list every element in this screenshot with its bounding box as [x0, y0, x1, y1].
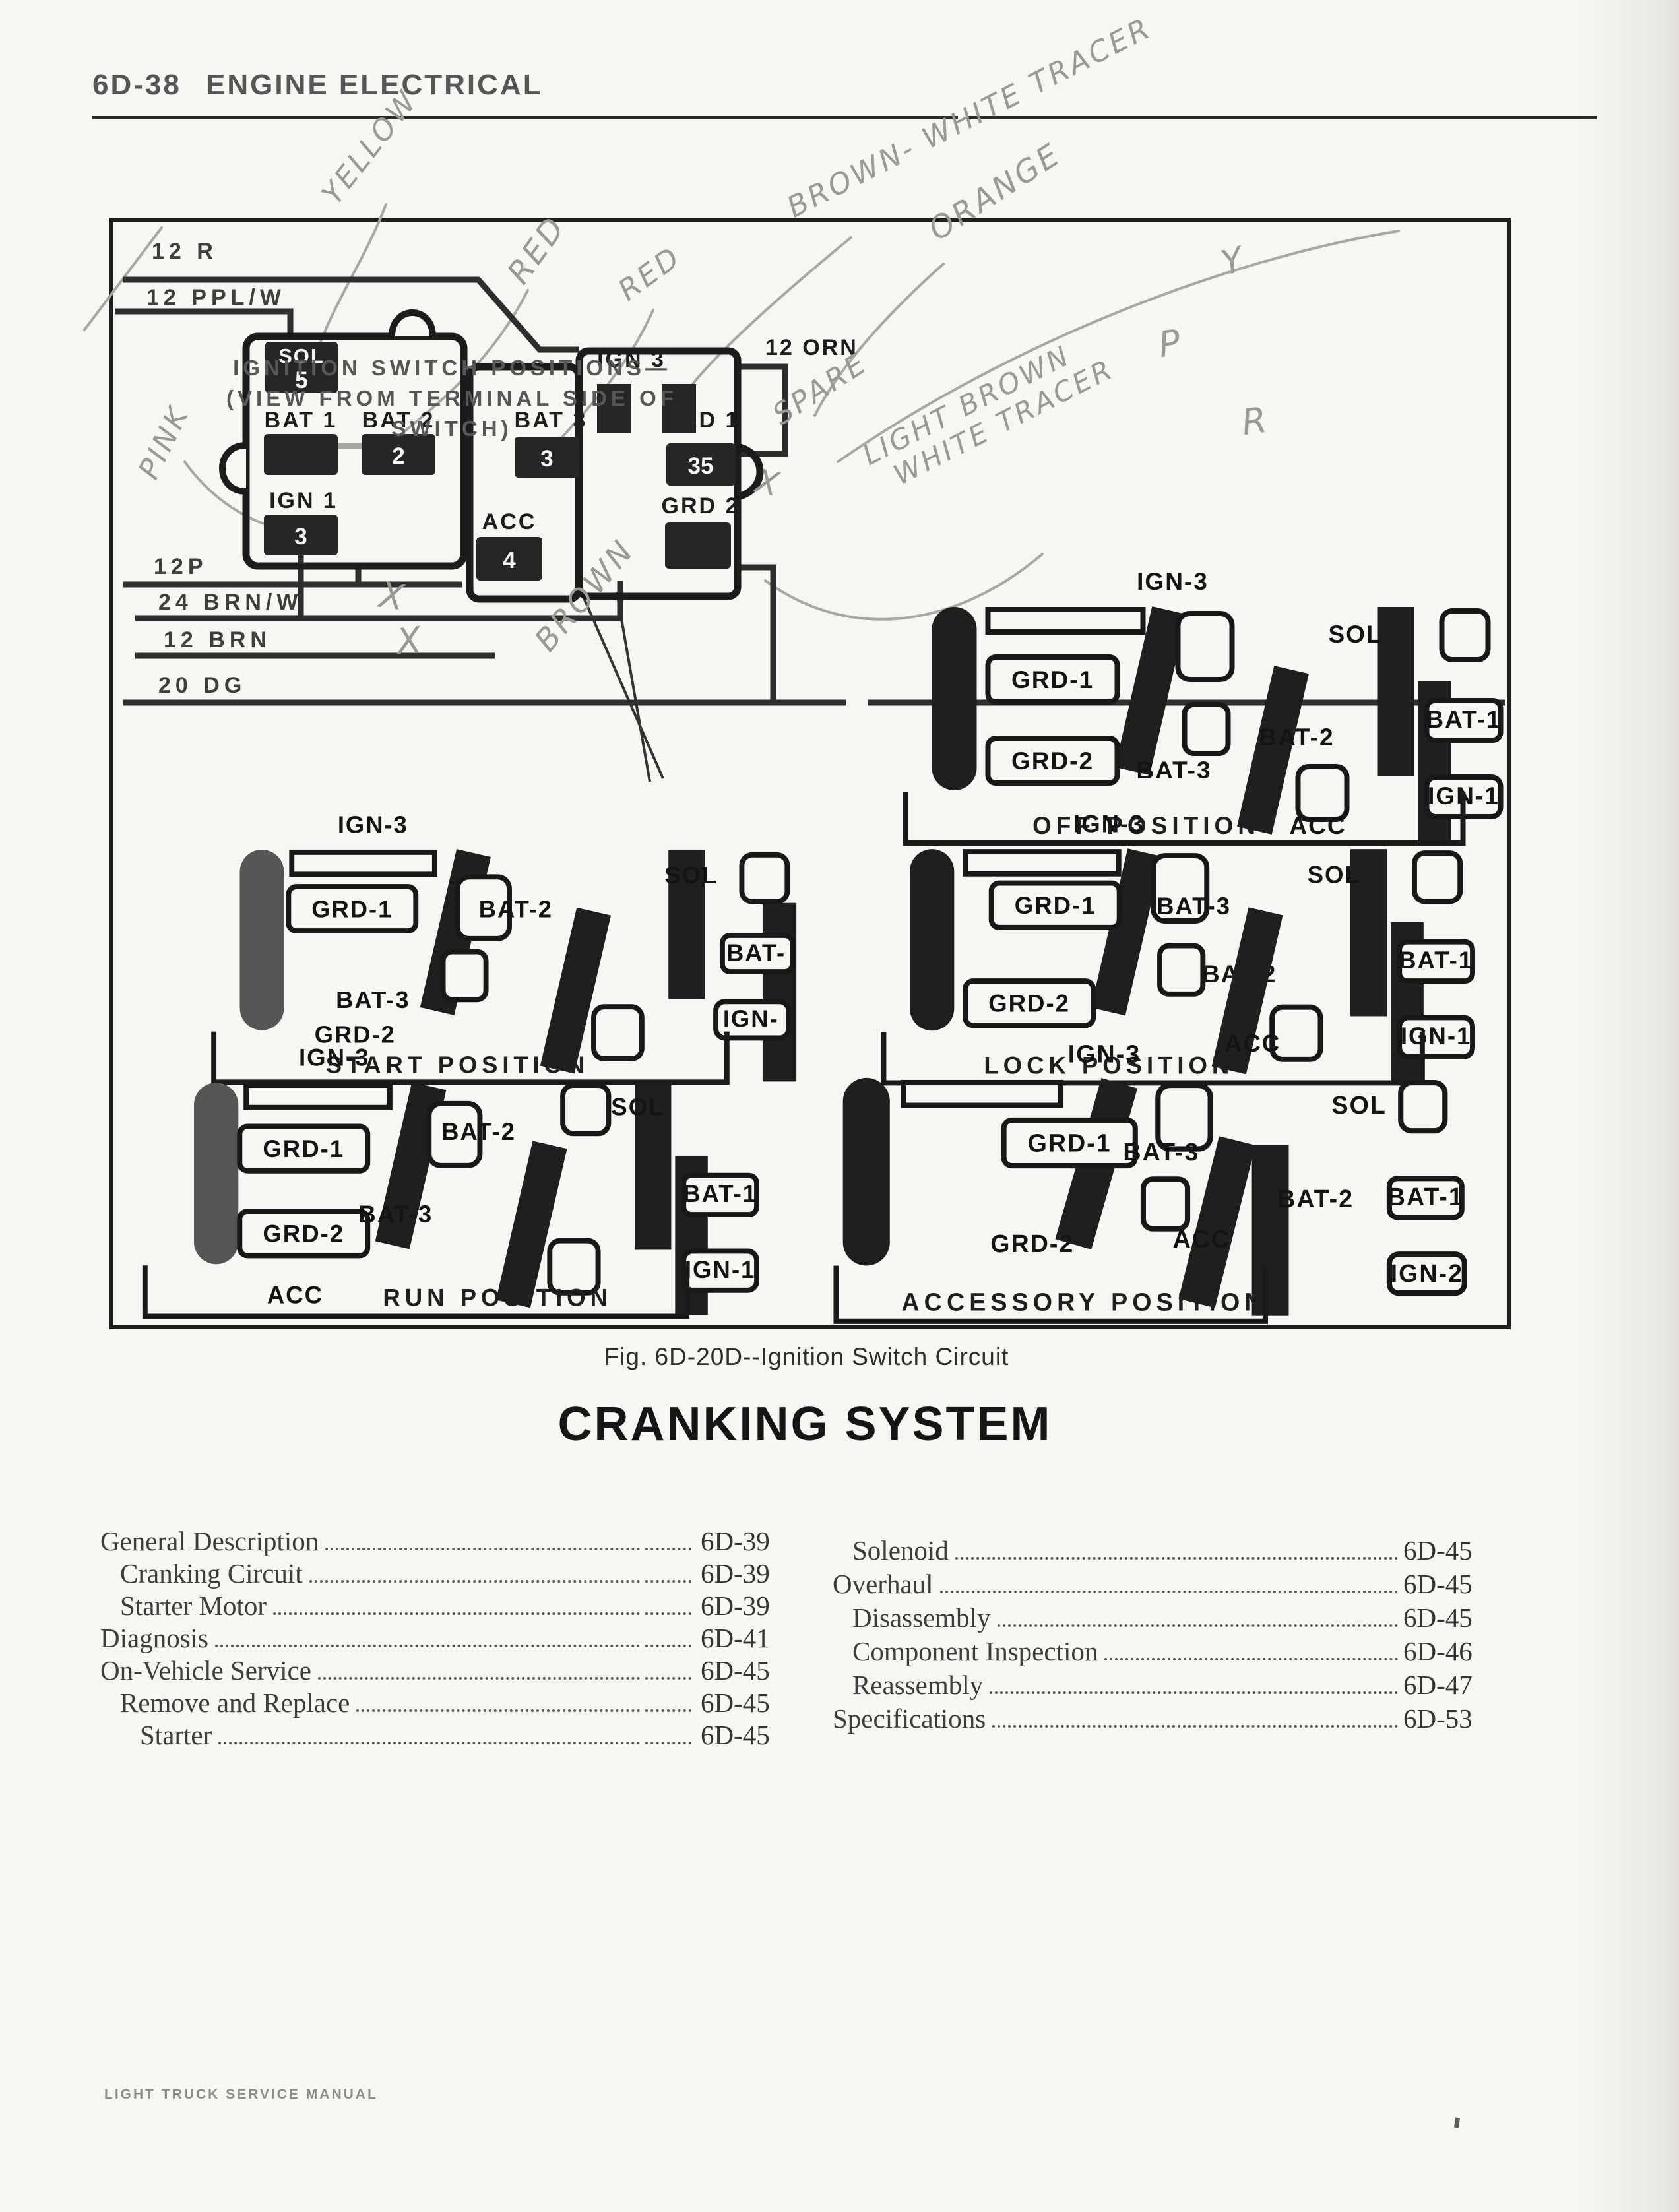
toc-leader [325, 1547, 640, 1550]
toc-row: Remove and Replace6D-45 [100, 1687, 780, 1719]
toc-entry-label: Specifications [833, 1703, 986, 1734]
run-bat3-label: BAT-3 [358, 1201, 433, 1228]
acc-bat1-label: BAT-1 [1387, 1183, 1464, 1211]
acc-number: 4 [503, 548, 516, 573]
toc-entry-label: Overhaul [833, 1568, 934, 1600]
wire-label-24brnw: 24 BRN/W [158, 590, 302, 615]
acc-grd1-label: GRD-1 [1028, 1129, 1112, 1157]
toc-entry-page: 6D-45 [1403, 1602, 1482, 1633]
bat2-number: 2 [392, 443, 404, 469]
acc-top-contact [903, 1083, 1061, 1106]
start-terminal-cup2 [443, 952, 486, 1000]
acc-sol-box [1401, 1083, 1445, 1131]
lock-grd1-label: GRD-1 [1015, 892, 1096, 919]
start-bat3-label: BAT-3 [336, 986, 410, 1013]
toc-leader [998, 1624, 1398, 1627]
run-grd2-label: GRD-2 [263, 1220, 344, 1248]
off-grd2-label: GRD-2 [1011, 747, 1094, 774]
toc-leader-short [645, 1709, 691, 1712]
toc-entry-label: Starter Motor [100, 1590, 267, 1622]
toc-row: General Description6D-39 [100, 1525, 780, 1558]
toc-entry-label: Disassembly [833, 1602, 991, 1633]
toc-leader-short [645, 1579, 691, 1583]
toc-entry-page: 6D-46 [1403, 1635, 1482, 1667]
toc-leader [955, 1556, 1398, 1560]
toc-row: Starter6D-45 [100, 1719, 780, 1752]
lock-terminal-cup2 [1160, 946, 1203, 994]
run-position-name: RUN POSITION [383, 1284, 612, 1311]
lock-sol-box [1414, 853, 1460, 901]
off-grd1-label: GRD-1 [1011, 666, 1094, 693]
toc-entry-page: 6D-39 [701, 1590, 780, 1622]
toc-entry-label: Diagnosis [100, 1622, 208, 1654]
acc-ign2-label: IGN-2 [1391, 1259, 1463, 1287]
toc-entry-page: 6D-45 [701, 1655, 780, 1686]
toc-entry-page: 6D-45 [701, 1687, 780, 1719]
acc-ign3-label: IGN-3 [1068, 1040, 1141, 1068]
toc-entry-page: 6D-45 [1403, 1534, 1482, 1566]
handwritten-x-1: X [377, 574, 409, 619]
toc-leader [1104, 1657, 1398, 1660]
toc-row: Specifications6D-53 [833, 1703, 1482, 1736]
run-position-diagram: IGN-3 GRD-1 GRD-2 BAT-2 BAT-3 SOL BAT-1 … [132, 1041, 759, 1329]
toc-entry-page: 6D-39 [701, 1525, 780, 1557]
acc-bat3-label: BAT-3 [1123, 1138, 1199, 1166]
lock-sol-label: SOL [1308, 862, 1361, 889]
positions-note: IGNITION SWITCH POSITIONS— (VIEW FROM TE… [168, 353, 736, 444]
acc-grd2-label: GRD-2 [990, 1230, 1074, 1257]
toc-leader [990, 1691, 1398, 1694]
start-grd1-label: GRD-1 [311, 895, 393, 922]
toc-row: Overhaul6D-45 [833, 1568, 1482, 1602]
accessory-position-diagram: IGN-3 GRD-1 BAT-3 GRD-2 BAT-2 SOL BAT-1 … [808, 1041, 1481, 1329]
off-top-contact [988, 610, 1143, 632]
toc-leader-short [645, 1547, 691, 1550]
lock-bat1-label: BAT-1 [1399, 947, 1473, 974]
wire-label-12r: 12 R [152, 239, 218, 264]
toc-row: Disassembly6D-45 [833, 1602, 1482, 1635]
run-bat1-label: BAT-1 [683, 1180, 757, 1207]
run-sol-label: SOL [611, 1094, 664, 1121]
acc-terminal-cup2 [1143, 1179, 1188, 1228]
toc-entry-page: 6D-47 [1403, 1669, 1482, 1701]
toc-entry-label: Component Inspection [833, 1635, 1098, 1667]
toc-leader-short [645, 1644, 691, 1647]
wire-label-12pplw: 12 PPL/W [146, 285, 286, 310]
off-sol-box [1442, 611, 1488, 660]
toc-entry-page: 6D-45 [701, 1719, 780, 1751]
toc-row: Solenoid6D-45 [833, 1534, 1482, 1568]
start-bat2-label: BAT-2 [479, 895, 553, 922]
start-rotor-pill [240, 850, 284, 1030]
wire-label-12brn: 12 BRN [164, 627, 271, 652]
off-bat3-label: BAT-3 [1136, 757, 1211, 784]
toc-leader [273, 1612, 640, 1615]
off-right-bar [1378, 607, 1414, 776]
toc-leader-short [645, 1741, 691, 1744]
run-rotor-pill [194, 1083, 238, 1264]
acc-sol-label: SOL [1332, 1091, 1387, 1119]
lock-grd2-label: GRD-2 [988, 990, 1070, 1017]
start-sol-label: SOL [664, 862, 718, 889]
off-terminal-cup2 [1185, 705, 1228, 753]
toc-entry-label: On-Vehicle Service [100, 1655, 311, 1686]
terminal-block-grd2 [665, 522, 731, 569]
toc-leader-short [645, 1612, 691, 1615]
grd1-number: 35 [688, 453, 714, 479]
start-top-contact [292, 852, 435, 874]
toc-entry-page: 6D-41 [701, 1622, 780, 1654]
run-bat2-label: BAT-2 [441, 1118, 516, 1145]
toc-entry-page: 6D-45 [1403, 1568, 1482, 1600]
start-bat1-label: BAT- [726, 939, 786, 966]
run-sol-box [563, 1085, 608, 1133]
start-ign3-label: IGN-3 [338, 811, 408, 838]
toc-row: On-Vehicle Service6D-45 [100, 1655, 780, 1687]
acc-rotor-pill [843, 1078, 890, 1266]
run-ign1-label: IGN-1 [685, 1256, 756, 1283]
handwritten-x-2: X [395, 619, 426, 663]
toc-leader [940, 1590, 1398, 1593]
off-bat2-label: BAT-2 [1259, 724, 1334, 751]
lock-ign3-label: IGN-3 [1073, 810, 1145, 837]
off-rotor-pill [932, 607, 977, 790]
acc-position-name: ACCESSORY POSITION [901, 1288, 1267, 1316]
off-bat1-label: BAT-1 [1426, 706, 1501, 733]
bat3-number: 3 [540, 446, 553, 472]
scanned-manual-page: { "header": {"code": "6D-38", "title": "… [0, 0, 1679, 2212]
figure-caption: Fig. 6D-20D--Ignition Switch Circuit [0, 1343, 1613, 1371]
toc-row: Component Inspection6D-46 [833, 1635, 1482, 1669]
toc-entry-label: General Description [100, 1525, 319, 1557]
toc-entry-label: Reassembly [833, 1669, 983, 1701]
ign1-number: 3 [294, 524, 307, 550]
grd2-label: GRD 2 [662, 493, 740, 519]
run-top-contact [246, 1085, 390, 1108]
run-grd1-label: GRD-1 [263, 1135, 344, 1162]
toc-leader [218, 1741, 640, 1744]
toc-leader [215, 1644, 640, 1647]
toc-leader [318, 1676, 640, 1680]
toc-entry-label: Starter [100, 1719, 212, 1751]
section-title: CRANKING SYSTEM [0, 1397, 1610, 1451]
lock-top-contact [965, 852, 1119, 874]
acc-acc-label: ACC [1173, 1225, 1231, 1253]
acc-label: ACC [482, 509, 537, 534]
toc-row: Cranking Circuit6D-39 [100, 1558, 780, 1590]
lock-bat3-label: BAT-3 [1156, 893, 1231, 920]
off-terminal-cup [1178, 614, 1232, 679]
toc-row: Starter Motor6D-39 [100, 1590, 780, 1622]
toc-entry-page: 6D-39 [701, 1558, 780, 1589]
handwritten-r: R [1239, 398, 1272, 443]
start-sol-box [742, 855, 787, 902]
run-ign3-label: IGN-3 [299, 1044, 370, 1071]
lock-rotor-pill [910, 849, 954, 1030]
positions-note-line1: IGNITION SWITCH POSITIONS— [168, 353, 736, 383]
toc-right-column: Solenoid6D-45 Overhaul6D-45 Disassembly6… [833, 1534, 1482, 1736]
off-ign3-label: IGN-3 [1137, 568, 1209, 595]
toc-entry-label: Cranking Circuit [100, 1558, 303, 1589]
toc-leader-short [645, 1676, 691, 1680]
toc-row: Reassembly6D-47 [833, 1669, 1482, 1703]
wire-label-20dg: 20 DG [158, 673, 246, 698]
toc-entry-label: Remove and Replace [100, 1687, 350, 1719]
toc-leader [309, 1579, 640, 1583]
off-sol-label: SOL [1328, 621, 1382, 648]
start-ign1-label: IGN- [723, 1005, 779, 1032]
toc-leader [992, 1724, 1398, 1728]
toc-entry-page: 6D-53 [1403, 1703, 1482, 1734]
acc-bat2-label: BAT-2 [1277, 1185, 1354, 1213]
toc-entry-label: Solenoid [833, 1534, 949, 1566]
positions-note-line2: (VIEW FROM TERMINAL SIDE OF SWITCH) [168, 383, 736, 444]
toc-leader [356, 1709, 640, 1712]
start-right-bar2 [763, 903, 796, 1082]
ign1-label: IGN 1 [269, 488, 338, 513]
run-acc-label: ACC [267, 1282, 323, 1309]
toc-row: Diagnosis6D-41 [100, 1622, 780, 1655]
toc-left-column: General Description6D-39 Cranking Circui… [100, 1525, 780, 1752]
footer-manual-name: LIGHT TRUCK SERVICE MANUAL [104, 2087, 378, 2102]
wire-label-12p: 12P [154, 554, 208, 579]
